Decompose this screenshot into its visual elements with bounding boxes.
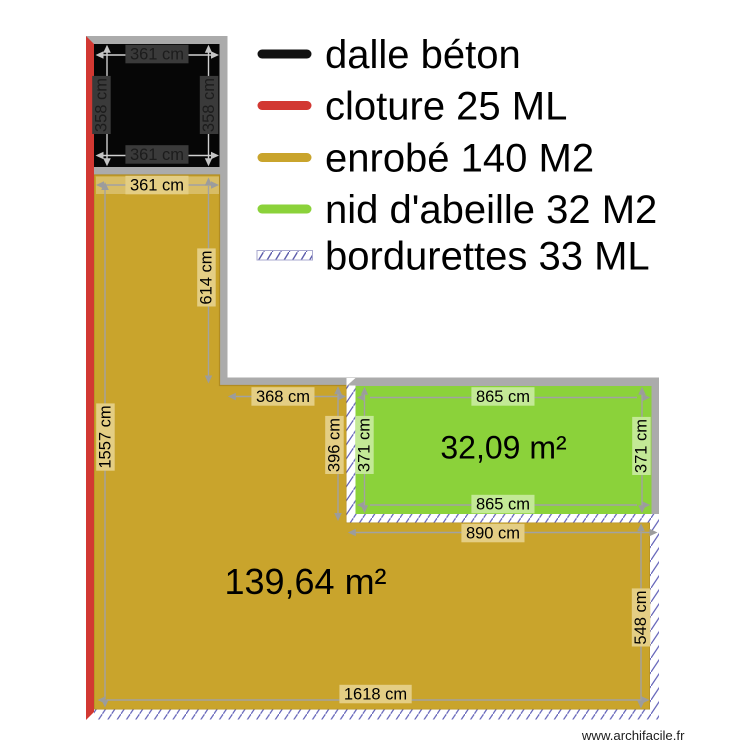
svg-text:865 cm: 865 cm <box>476 388 530 406</box>
svg-text:1557 cm: 1557 cm <box>97 405 115 468</box>
svg-text:614 cm: 614 cm <box>198 250 216 304</box>
svg-text:1618 cm: 1618 cm <box>344 686 407 704</box>
svg-text:361 cm: 361 cm <box>130 46 184 64</box>
svg-text:cloture 25 ML: cloture 25 ML <box>325 85 567 129</box>
svg-text:358 cm: 358 cm <box>200 78 218 132</box>
svg-text:enrobé 140 M2: enrobé 140 M2 <box>325 137 594 181</box>
svg-text:361 cm: 361 cm <box>130 177 184 195</box>
svg-text:32,09 m²: 32,09 m² <box>440 430 567 466</box>
svg-text:bordurettes 33 ML: bordurettes 33 ML <box>325 235 650 279</box>
svg-text:371 cm: 371 cm <box>633 419 651 473</box>
svg-text:361 cm: 361 cm <box>130 146 184 164</box>
svg-text:dalle béton: dalle béton <box>325 33 521 77</box>
svg-text:371 cm: 371 cm <box>356 418 374 472</box>
svg-text:396 cm: 396 cm <box>326 418 344 472</box>
svg-text:www.archifacile.fr: www.archifacile.fr <box>581 728 685 743</box>
svg-text:139,64 m²: 139,64 m² <box>224 561 386 602</box>
svg-text:nid d'abeille 32 M2: nid d'abeille 32 M2 <box>325 188 657 232</box>
svg-text:358 cm: 358 cm <box>93 78 111 132</box>
svg-text:548 cm: 548 cm <box>632 590 650 644</box>
svg-text:890 cm: 890 cm <box>466 525 520 543</box>
svg-text:865 cm: 865 cm <box>476 496 530 514</box>
svg-text:368 cm: 368 cm <box>256 388 310 406</box>
